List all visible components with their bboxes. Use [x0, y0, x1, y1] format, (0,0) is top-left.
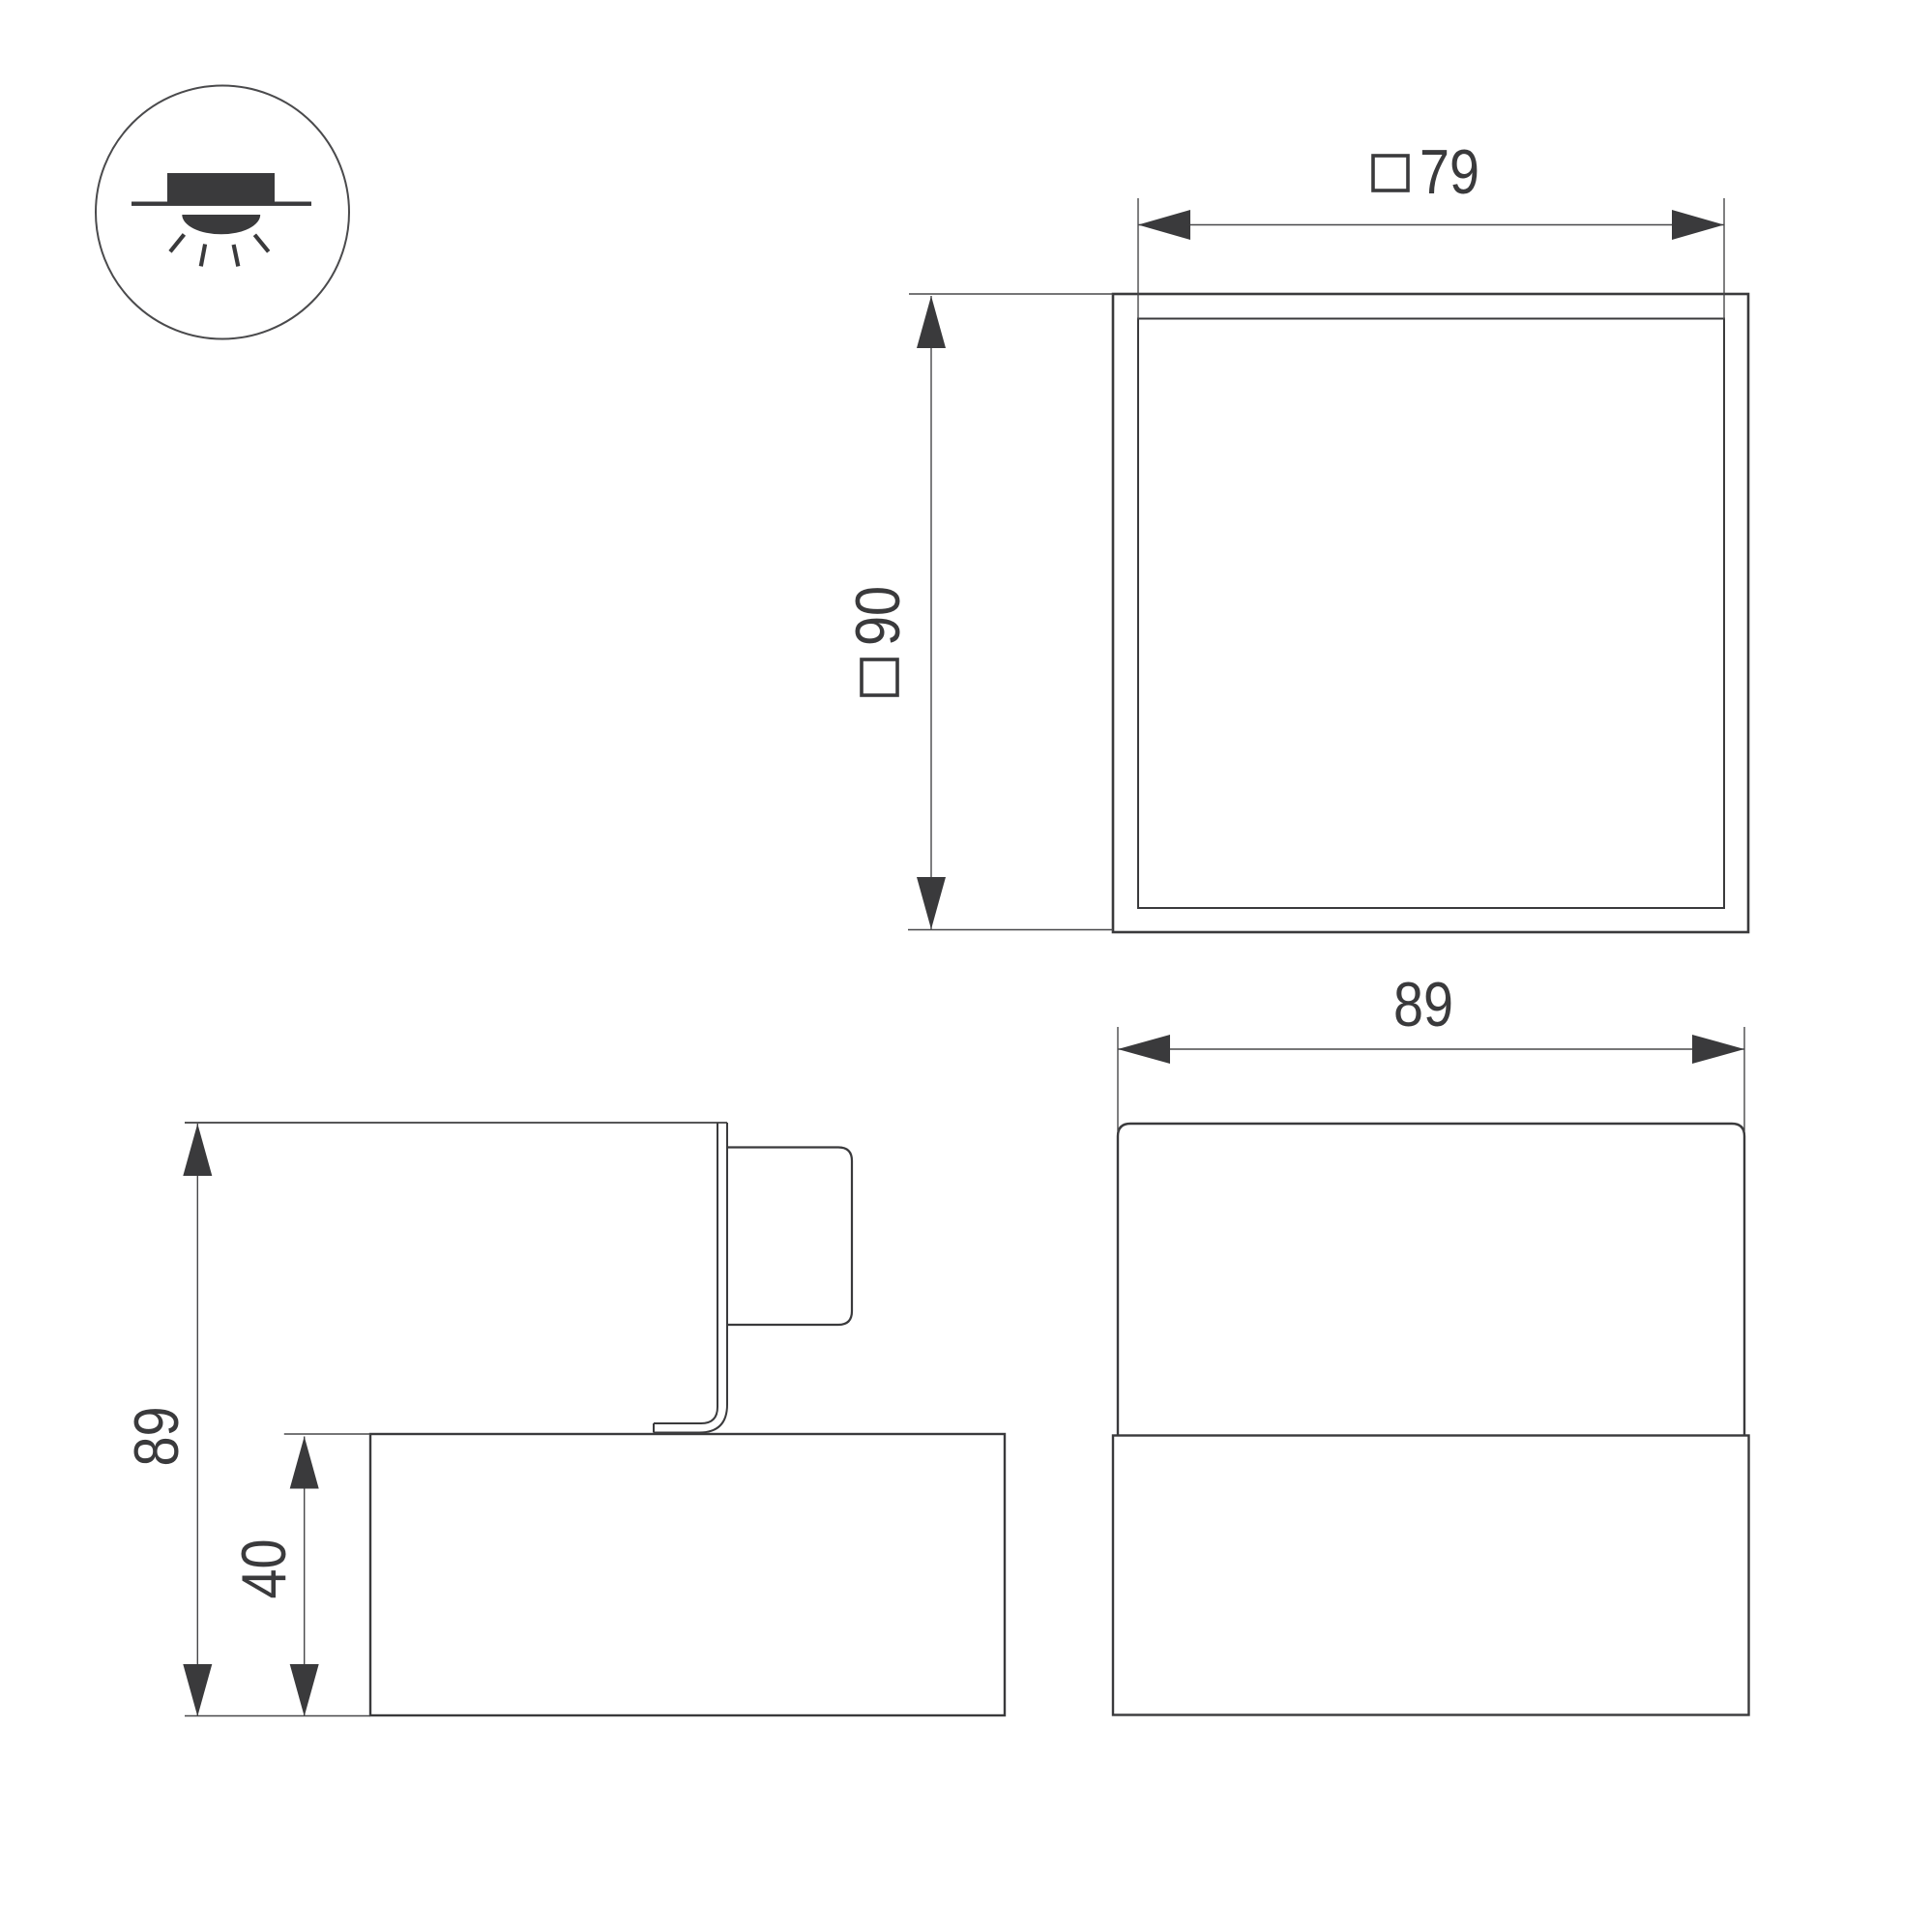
svg-text:90: 90 [842, 586, 913, 646]
svg-text:40: 40 [228, 1539, 299, 1599]
svg-text:79: 79 [1420, 136, 1479, 207]
svg-text:89: 89 [1393, 969, 1453, 1039]
svg-text:89: 89 [121, 1407, 191, 1467]
